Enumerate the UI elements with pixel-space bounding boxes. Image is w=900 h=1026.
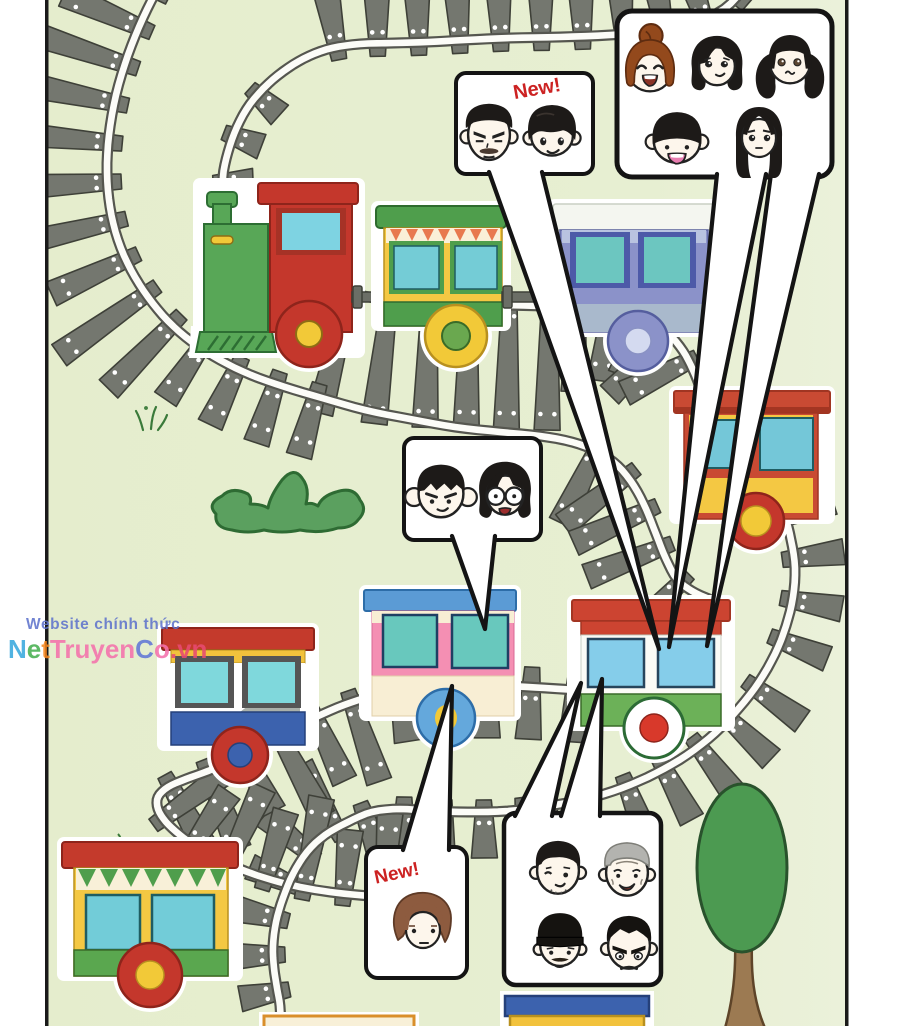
svg-text:Website chính thức: Website chính thức: [26, 616, 180, 633]
svg-text:NetTruyenCo.vn: NetTruyenCo.vn: [8, 634, 207, 664]
